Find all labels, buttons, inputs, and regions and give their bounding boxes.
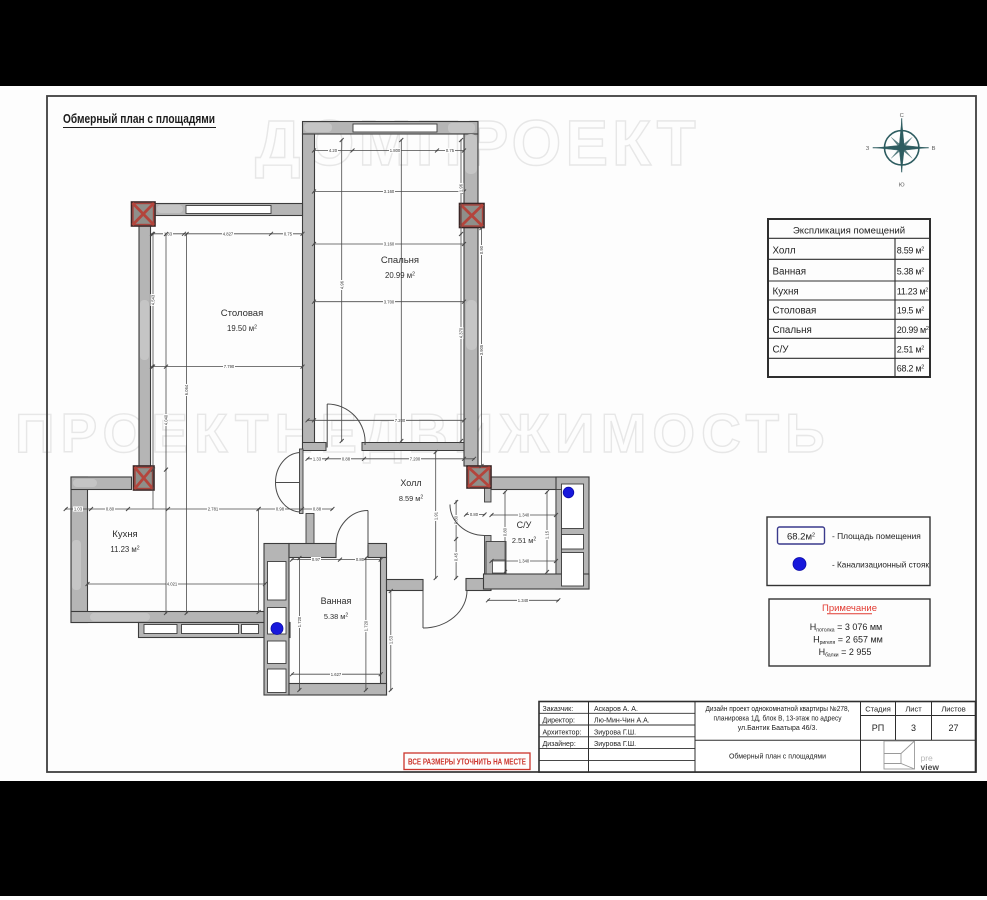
svg-text:0.90: 0.90 <box>479 245 484 254</box>
svg-text:Обмерный план с площадями: Обмерный план с площадями <box>729 752 826 761</box>
svg-text:Лист: Лист <box>905 705 922 714</box>
svg-text:11.23 м2: 11.23 м2 <box>110 545 139 554</box>
svg-text:1.800: 1.800 <box>390 148 401 153</box>
svg-text:6.064: 6.064 <box>184 384 189 395</box>
svg-text:8.59 м2: 8.59 м2 <box>897 246 924 256</box>
svg-text:Дизайнер:: Дизайнер: <box>543 740 576 748</box>
svg-text:0.80: 0.80 <box>470 512 479 517</box>
svg-text:С/У: С/У <box>773 344 790 355</box>
svg-text:С: С <box>900 113 904 119</box>
svg-text:4.021: 4.021 <box>167 582 178 587</box>
svg-text:Экспликация помещений: Экспликация помещений <box>793 226 905 237</box>
svg-text:Ванная: Ванная <box>773 267 807 278</box>
svg-text:В: В <box>932 146 936 152</box>
svg-text:8.59 м2: 8.59 м2 <box>399 494 424 503</box>
svg-text:4.827: 4.827 <box>223 231 234 236</box>
svg-text:2.51 м2: 2.51 м2 <box>512 536 537 545</box>
svg-text:Ю: Ю <box>899 183 905 189</box>
svg-text:4.20: 4.20 <box>329 148 338 153</box>
svg-text:1.720: 1.720 <box>297 616 302 627</box>
svg-text:Примечание: Примечание <box>822 603 877 614</box>
svg-text:4.040: 4.040 <box>164 414 169 425</box>
svg-text:3.160: 3.160 <box>384 189 395 194</box>
svg-text:7.790: 7.790 <box>224 364 235 369</box>
svg-text:0.45: 0.45 <box>454 552 459 561</box>
svg-text:Дизайн проект однокомнатной кв: Дизайн проект однокомнатной квартиры №27… <box>706 705 850 713</box>
svg-text:3.160: 3.160 <box>384 242 395 247</box>
svg-text:0.75: 0.75 <box>446 148 455 153</box>
svg-text:1.96: 1.96 <box>459 183 464 192</box>
svg-text:0.97: 0.97 <box>312 557 321 562</box>
svg-text:19.50 м2: 19.50 м2 <box>227 324 257 333</box>
svg-text:5.38 м2: 5.38 м2 <box>324 612 349 621</box>
svg-text:Кухня: Кухня <box>112 529 137 540</box>
svg-text:Лю-Мин-Чин А.А.: Лю-Мин-Чин А.А. <box>594 718 650 725</box>
svg-text:Директор:: Директор: <box>543 718 575 725</box>
svg-text:1.91: 1.91 <box>433 511 438 520</box>
svg-text:- Площадь помещения: - Площадь помещения <box>832 531 921 541</box>
svg-text:планировка 1Д, блок В, 13-этаж: планировка 1Д, блок В, 13-этаж по адресу <box>714 715 842 723</box>
svg-text:Кухня: Кухня <box>773 287 799 298</box>
svg-text:5.38 м2: 5.38 м2 <box>897 267 924 277</box>
svg-text:Hпотолка = 3 076 мм: Hпотолка = 3 076 мм <box>810 622 882 634</box>
svg-text:Спальня: Спальня <box>381 255 419 266</box>
svg-text:0.80: 0.80 <box>106 507 115 512</box>
svg-text:0.88: 0.88 <box>313 507 322 512</box>
svg-text:Обмерный план с площадями: Обмерный план с площадями <box>63 112 215 126</box>
svg-text:1.33: 1.33 <box>313 456 322 461</box>
svg-text:7.200: 7.200 <box>395 418 406 423</box>
svg-text:Hригеля = 2 657 мм: Hригеля = 2 657 мм <box>813 635 883 647</box>
svg-text:4.370: 4.370 <box>459 327 464 338</box>
svg-text:Столовая: Столовая <box>221 308 263 319</box>
svg-text:4.96: 4.96 <box>339 280 344 289</box>
svg-text:0.88: 0.88 <box>342 456 351 461</box>
svg-text:2.781: 2.781 <box>208 507 219 512</box>
svg-text:11.23 м2: 11.23 м2 <box>897 287 928 297</box>
svg-text:4.543: 4.543 <box>151 294 156 305</box>
svg-text:1.15: 1.15 <box>545 530 550 539</box>
svg-text:Заказчик:: Заказчик: <box>543 706 574 713</box>
svg-text:Зиурова Г.Ш.: Зиурова Г.Ш. <box>594 729 636 736</box>
svg-text:С/У: С/У <box>517 520 532 530</box>
svg-text:0.80: 0.80 <box>503 527 508 536</box>
svg-text:1.03: 1.03 <box>74 507 83 512</box>
svg-text:0.80: 0.80 <box>356 557 365 562</box>
svg-text:2.51 м2: 2.51 м2 <box>897 344 924 354</box>
svg-text:1.53: 1.53 <box>388 635 393 644</box>
svg-text:20.99 м2: 20.99 м2 <box>897 325 929 335</box>
svg-text:Ванная: Ванная <box>321 596 352 606</box>
svg-text:Hбалки = 2 955: Hбалки = 2 955 <box>819 647 872 659</box>
svg-text:РП: РП <box>872 723 884 733</box>
svg-text:1.720: 1.720 <box>363 620 368 631</box>
svg-text:68.2 м2: 68.2 м2 <box>897 364 924 374</box>
svg-text:1.340: 1.340 <box>519 513 530 518</box>
svg-text:Архитектор:: Архитектор: <box>543 729 582 736</box>
svg-text:1.340: 1.340 <box>519 559 530 564</box>
svg-text:68.2м2: 68.2м2 <box>787 532 815 543</box>
svg-text:- Канализационный стояк: - Канализационный стояк <box>832 561 929 570</box>
svg-text:view: view <box>921 762 940 772</box>
svg-text:20.99 м2: 20.99 м2 <box>385 271 415 280</box>
svg-text:Холл: Холл <box>400 478 421 488</box>
svg-text:Холл: Холл <box>773 246 796 257</box>
svg-text:З: З <box>866 146 870 152</box>
svg-text:19.5 м2: 19.5 м2 <box>897 306 924 316</box>
svg-text:Зиурова Г.Ш.: Зиурова Г.Ш. <box>594 741 636 748</box>
svg-text:ВСЕ РАЗМЕРЫ УТОЧНИТЬ НА МЕСТЕ: ВСЕ РАЗМЕРЫ УТОЧНИТЬ НА МЕСТЕ <box>408 758 527 767</box>
svg-text:1.627: 1.627 <box>331 672 342 677</box>
svg-text:Столовая: Столовая <box>773 306 817 317</box>
svg-text:1.340: 1.340 <box>518 598 529 603</box>
svg-text:Листов: Листов <box>941 705 965 714</box>
svg-text:7.200: 7.200 <box>410 456 421 461</box>
svg-text:ул.Бантик Баатыра 46/3.: ул.Бантик Баатыра 46/3. <box>738 725 818 732</box>
svg-text:3.905: 3.905 <box>479 344 484 355</box>
svg-text:ПРОЕКТНЕДВИЖИМОСТЬ: ПРОЕКТНЕДВИЖИМОСТЬ <box>15 402 831 464</box>
svg-text:3.700: 3.700 <box>384 299 395 304</box>
svg-text:27: 27 <box>948 723 958 733</box>
svg-text:3: 3 <box>911 723 916 733</box>
svg-text:0.98: 0.98 <box>276 507 285 512</box>
svg-text:Стадия: Стадия <box>865 705 891 714</box>
svg-text:Аскаров А. А.: Аскаров А. А. <box>594 706 638 713</box>
svg-text:Спальня: Спальня <box>773 325 812 336</box>
svg-text:0.75: 0.75 <box>284 231 293 236</box>
